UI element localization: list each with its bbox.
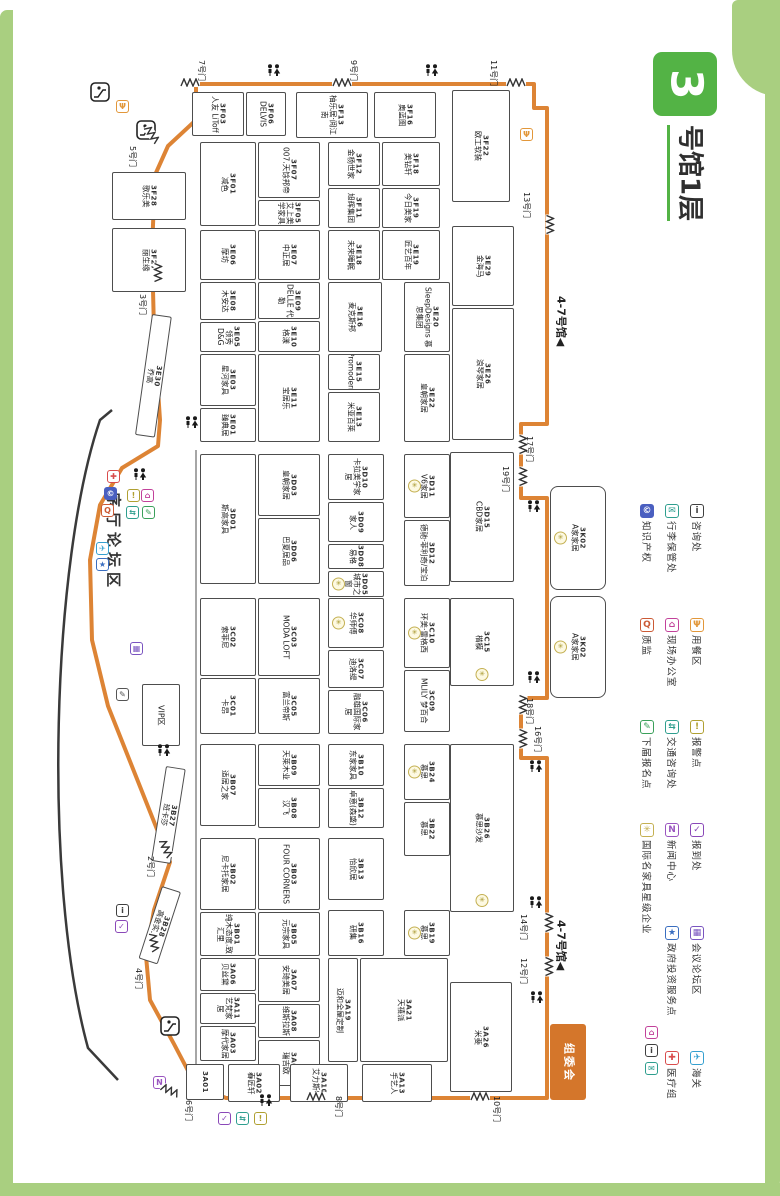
booth-3d05: 3D05城市之窗✳: [328, 571, 384, 597]
booth-label: 3C03MODA LOFT: [281, 615, 298, 659]
customs-icon: ✈: [96, 542, 109, 555]
booth-code: 3F22: [481, 131, 489, 161]
booth-label: 3F03人友 LiToff: [210, 96, 227, 133]
booth-code: 3A21: [404, 999, 412, 1022]
booth-name: DELLE 代勒: [276, 283, 293, 318]
hall-number-badge: 3: [653, 52, 717, 116]
booth-name: 尼卡托家居: [220, 855, 229, 893]
booth-name: 楷模: [474, 631, 483, 653]
booth-3e11: 3E11宝居乐: [258, 354, 320, 442]
booth-3c06: 3C06融雄国际家居: [328, 690, 384, 734]
booth-3d12: 3D12德驰·菲利奇/宝泊: [404, 520, 450, 586]
booth-label: 3E07中正居: [281, 244, 298, 267]
booth-label: 3E26浪琴家居: [475, 359, 492, 389]
gate-mark-16号门: [519, 729, 528, 749]
gate-label-8号门: 8号门: [334, 1096, 343, 1117]
booth-3f12: 3F12金杨世家: [328, 142, 380, 186]
floor-plan-page: 3 号馆1层 3F03人友 LiToff3F06DELVIS3F13柚乐居·阅江…: [0, 0, 780, 1196]
legend-label: 现场办公室: [665, 635, 679, 688]
booth-3b13: 3B13怡欣居: [328, 838, 384, 900]
booth-label: 3B03FOUR CORNERS: [281, 844, 298, 904]
booth-label: 3E20SleepDesigns 慕思集团: [414, 283, 439, 351]
booth-name: 格漾: [281, 326, 290, 347]
booth-label: 3B19慕思: [419, 922, 436, 944]
office-icon: ⌂: [141, 489, 154, 502]
booth-name: 人友 LiToff: [210, 96, 219, 133]
booth-label: 3B27班卡莎: [158, 803, 178, 828]
booth-3b26: 3B26慕思沙发✳: [450, 744, 514, 912]
booth-3c05: 3C05富兰帝斯: [258, 678, 320, 734]
booth-3b03: 3B03FOUR CORNERS: [258, 838, 320, 910]
booth-label: 3F07007.天馀邦帝: [281, 147, 298, 194]
legend-item-customs: ✈海关: [690, 1051, 704, 1089]
checkin-icon: ✓: [115, 920, 128, 933]
checkin-icon: ✓: [218, 1112, 231, 1125]
booth-label: 3C06融雄国际家居: [343, 691, 368, 733]
committee-label: 组委会: [562, 1043, 575, 1082]
legend-label: 会议论坛区: [690, 943, 704, 996]
star-enterprise-icon: ✳: [408, 480, 421, 493]
booth-name: 米斐: [473, 1026, 482, 1048]
booth-label: 3E11宝居乐: [281, 387, 298, 410]
legend-item-gov: ★政府投资服务点: [665, 926, 679, 1017]
restroom-icon: [526, 500, 541, 512]
booth-name: 卓意(森盛): [348, 790, 357, 826]
booth-name: 匠艺百年: [403, 240, 412, 270]
nextreg-icon: ✎: [640, 720, 654, 734]
booth-name: 纯木态度.致汇里: [215, 913, 232, 955]
restroom-icon: [528, 896, 543, 908]
escalator-icon: [90, 82, 110, 102]
booth-3b24: 3B24慕思✳: [404, 744, 450, 800]
info-icon: i: [645, 1044, 658, 1057]
gate-label-13号门: 13号门: [522, 192, 531, 218]
gate-label-3号门: 3号门: [138, 294, 147, 315]
booth-name: MLILY 梦百合: [419, 678, 428, 724]
booth-label: 3C02索菲尼: [220, 626, 237, 649]
booth-label: 3A11艺梵家居: [215, 994, 240, 1023]
booth-name: 天莱木业: [281, 750, 290, 780]
starent-icon: ✳: [640, 823, 654, 837]
gate-mark-14号门: [545, 913, 554, 933]
dining-icon: Ψ: [520, 128, 533, 141]
legend-item-starent: ✳国际名家具星级企业: [640, 823, 654, 935]
booth-code: 3C01: [228, 695, 236, 717]
legend-label: 政府投资服务点: [665, 943, 679, 1017]
booth-3b19: 3B19慕思✳: [404, 910, 450, 956]
police-icon: !: [254, 1112, 267, 1125]
booth-name: 巴夏居品: [281, 536, 290, 566]
restroom-icon: [528, 760, 543, 772]
vip-area: VIP区: [142, 684, 180, 746]
legend-label: 咨询处: [690, 521, 704, 553]
booth-name: 德驰·菲利奇/宝泊: [419, 524, 428, 581]
booth-name: 臻典居: [220, 414, 229, 437]
booth-name: 金杨世家: [346, 149, 355, 179]
booth-code: 3A01: [201, 1071, 209, 1093]
booth-3b01: 3B01纯木态度.致汇里: [200, 912, 256, 956]
booth-code: 3E10: [289, 326, 297, 347]
booth-label: 3A13手艺人: [389, 1072, 406, 1095]
booth-3a08: 3A08维斯拉斯: [258, 1004, 320, 1038]
booth-label: 3C07迪洛缇: [348, 658, 365, 681]
booth-code: 3B10: [356, 750, 364, 780]
booth-3c09: 3C09MLILY 梦百合: [404, 670, 450, 732]
booth-3c07: 3C07迪洛缇: [328, 650, 384, 688]
gov-icon: ★: [96, 558, 109, 571]
legend-label: 新闻中心: [665, 840, 679, 882]
booth-label: 3E18未来睡眠: [346, 240, 363, 270]
luggage-icon: ✉: [645, 1062, 658, 1075]
booth-code: 3A03: [228, 1029, 236, 1059]
pen-icon: ✎: [116, 688, 129, 701]
booth-name: 研集: [348, 922, 357, 944]
booth-label: 3E05领秀D&G: [215, 323, 240, 351]
booth-label: 3A08维斯拉斯: [281, 1006, 298, 1036]
booth-3e05: 3E05领秀D&G: [200, 322, 256, 352]
booth-label: 3E29金海马: [475, 255, 492, 278]
medical-icon: ✚: [665, 1051, 679, 1065]
legend-label: 用餐区: [690, 635, 704, 667]
booth-3f27: 3F27丽生缘: [112, 228, 186, 292]
legend-item-magnifier: Q质监: [640, 618, 654, 656]
booth-3f06: 3F06DELVIS: [246, 92, 286, 136]
booth-code: 3B08: [289, 797, 297, 819]
booth-3f22: 3F22欧工软装: [452, 90, 510, 202]
booth-label: 3D01斯高家具: [220, 504, 237, 534]
booth-code: 3A08: [289, 1006, 297, 1036]
booth-code: 3F07: [289, 147, 297, 194]
page-title: 3 号馆1层: [652, 52, 718, 221]
restroom-icon: [529, 991, 544, 1003]
booth-code: 3B05: [289, 919, 297, 949]
booth-3f01: 3F01减色: [200, 142, 256, 226]
booth-label: 3A21天禧派: [396, 999, 413, 1022]
legend-item-traffic: ⇆交通咨询处: [665, 720, 679, 790]
booth-name: 卡拉美学家居: [343, 455, 360, 499]
booth-label: 3F12金杨世家: [346, 149, 363, 179]
booth-name: 斯高家具: [220, 504, 229, 534]
booth-name: 迈和全屋定制: [335, 988, 344, 1033]
booth-name: 适居之家: [220, 770, 229, 800]
booth-code: 3A26: [481, 1026, 489, 1048]
legend-item-nextreg: ✎下届报名点: [640, 720, 654, 790]
booth-code: 3C03: [289, 615, 297, 659]
gate-label-10号门: 10号门: [492, 1096, 501, 1122]
booth-label: 3A19迈和全屋定制: [335, 988, 352, 1033]
magnifier-icon: Q: [101, 504, 114, 517]
booth-label: 3A01: [201, 1071, 209, 1093]
booth-label: 3F28歌乐美: [141, 185, 158, 208]
booth-name: 迪洛缇: [348, 658, 357, 681]
police-icon: !: [127, 489, 140, 502]
ip-icon: ©: [104, 487, 117, 500]
legend-item-news: N新闻中心: [665, 823, 679, 882]
booth-3b07: 3B07适居之家: [200, 744, 256, 826]
booth-3f18: 3F18美钻轩: [382, 142, 440, 186]
booth-label: 3F22欧工软装: [473, 131, 490, 161]
legend-item-checkin: ✓报到处: [690, 823, 704, 872]
magnifier-icon: Q: [640, 618, 654, 632]
gate-label-2号门: 2号门: [146, 856, 155, 877]
booth-code: 3B24: [427, 761, 435, 783]
booth-label: 3E16麦克斯邦: [347, 302, 364, 332]
booth-name: 丽生缘: [141, 249, 150, 272]
booth-code: 3C02: [228, 626, 236, 649]
gate-label-7号门: 7号门: [197, 60, 206, 81]
forum-icon: ▦: [690, 926, 704, 940]
booth-code: 3D03: [289, 470, 297, 500]
booth-code: 3C05: [289, 691, 297, 721]
booth-3d11: 3D11V6家居✳: [404, 454, 450, 518]
restroom-icon: [424, 64, 439, 76]
booth-code: 3E08: [228, 290, 236, 313]
legend-item-luggage: ✉行李保管处: [665, 504, 679, 574]
hall-number: 3: [660, 69, 711, 100]
booth-code: 3B09: [289, 750, 297, 780]
booth-label: 3F11旭辉集团: [346, 193, 363, 223]
booth-name: 融雄国际家居: [343, 691, 360, 733]
booth-name: 汉飞: [281, 797, 290, 819]
booth-code: 3C08: [356, 612, 364, 635]
booth-label: 3A02春匠轩: [246, 1072, 263, 1095]
gate-mark-8号门: [306, 1092, 326, 1101]
office-icon: ⌂: [645, 1026, 658, 1039]
booth-name: 富兰帝斯: [281, 691, 290, 721]
traffic-icon: ⇆: [236, 1112, 249, 1125]
booth-3e26: 3E26浪琴家居: [452, 308, 514, 440]
booth-code: 3C07: [356, 658, 364, 681]
gate-mark-10号门: [470, 1092, 490, 1101]
vip-label: VIP区: [156, 705, 165, 726]
booth-3b12: 3B12卓意(森盛): [328, 788, 384, 828]
legend-item-info: i咨询处: [690, 504, 704, 553]
booth-label: 3D05城市之窗: [343, 572, 368, 596]
booth-code: 3B13: [356, 858, 364, 881]
star-enterprise-icon: ✳: [476, 894, 489, 907]
booth-3a19: 3A19迈和全屋定制: [328, 958, 358, 1062]
booth-label: 3D10卡拉美学家居: [343, 455, 368, 499]
booth-3e19: 3E19匠艺百年: [382, 230, 440, 280]
checkin-icon: ✓: [690, 823, 704, 837]
booth-3e29: 3E29金海马: [452, 226, 514, 306]
booth-code: 3F16: [405, 104, 413, 127]
booth-name: CBD家居: [474, 501, 483, 532]
booth-code: 3D12: [427, 524, 435, 581]
booth-3e09: 3E09DELLE 代勒: [258, 282, 320, 319]
booth-3e07: 3E07中正居: [258, 230, 320, 280]
gate-label-16号门: 16号门: [533, 726, 542, 752]
booth-name: 宝居乐: [281, 387, 290, 410]
booth-code: 3E11: [289, 387, 297, 410]
legend-item-police: !报警点: [690, 720, 704, 769]
booth-3e13: 3E13米亚百莱: [328, 392, 380, 442]
booth-label: 3B16研集: [348, 922, 365, 944]
booth-label: 3C10环美·雷格西: [419, 613, 436, 653]
booth-3e01: 3E01臻典居: [200, 408, 256, 442]
booth-code: 3A02: [254, 1072, 262, 1095]
legend-label: 国际名家具星级企业: [640, 840, 654, 935]
news-icon: N: [665, 823, 679, 837]
booth-name: 美钻轩: [403, 153, 412, 176]
booth-code: 3E15: [354, 354, 362, 390]
frame-bottom: [0, 1183, 780, 1196]
booth-3e16: 3E16麦克斯邦: [328, 282, 382, 352]
booth-name: 慕思: [419, 818, 428, 840]
booth-3b10: 3B10东家家具: [328, 744, 384, 786]
escalator-icon: [160, 1016, 180, 1036]
booth-name: 中正居: [281, 244, 290, 267]
restroom-icon: [156, 744, 171, 756]
booth-name: Promodern: [346, 354, 355, 390]
restroom-icon: [132, 468, 147, 480]
legend-item-medical: ✚医疗组: [665, 1051, 679, 1100]
booth-name: 东家家具: [348, 750, 357, 780]
booth-code: 3B16: [356, 922, 364, 944]
booth-name: 城市之窗: [343, 572, 360, 596]
gate-label-9号门: 9号门: [349, 60, 358, 81]
committee-box: 组委会: [550, 1024, 586, 1100]
booth-label: 3B07适居之家: [220, 770, 237, 800]
restroom-icon: [266, 64, 281, 76]
booth-3d10: 3D10卡拉美学家居: [328, 454, 384, 500]
star-enterprise-icon: ✳: [332, 578, 345, 591]
gate-label-17号门: 17号门: [525, 436, 534, 462]
booth-3d08: 3D08易格: [328, 544, 384, 569]
booth-3b05: 3B05元宗家具: [258, 912, 320, 956]
booth-label: 3E30乔高: [144, 364, 163, 388]
police-icon: !: [690, 720, 704, 734]
booth-3a13: 3A13手艺人: [362, 1064, 432, 1102]
booth-code: 3F28: [149, 185, 157, 208]
customs-icon: ✈: [690, 1051, 704, 1065]
booth-code: 3F06: [266, 101, 274, 127]
booth-name: 瑞吉欧: [281, 1052, 290, 1075]
medical-icon: ✚: [107, 470, 120, 483]
legend-item-dining: Ψ用餐区: [690, 618, 704, 667]
booth-code: 3K02: [578, 524, 586, 552]
booth-name: 木安达: [220, 290, 229, 313]
office-icon: ⌂: [665, 618, 679, 632]
booth-label: 3D09家人: [348, 511, 365, 533]
booth-3e03: 3E03星河家具: [200, 354, 256, 406]
legend-label: 质监: [640, 635, 654, 656]
booth-3e20: 3E20SleepDesigns 慕思集团: [404, 282, 450, 352]
booth-code: 3E03: [228, 365, 236, 395]
booth-label: 3C15楷模: [474, 631, 491, 653]
legend-label: 海关: [690, 1068, 704, 1089]
gate-label-5号门: 5号门: [128, 146, 137, 167]
gate-mark-12号门: [545, 957, 554, 977]
legend-label: 医疗组: [665, 1068, 679, 1100]
booth-3d03: 3D03皇朝家居: [258, 454, 320, 516]
legend-label: 报到处: [690, 840, 704, 872]
booth-code: 3E29: [483, 255, 491, 278]
booth-label: 3D03皇朝家居: [281, 470, 298, 500]
booth-code: 3D11: [427, 474, 435, 499]
booth-code: 3B26: [482, 813, 490, 843]
booth-label: 3E15Promodern: [346, 354, 363, 390]
booth-name: 华师傅: [348, 612, 357, 635]
booth-code: 3B03: [289, 844, 297, 904]
booth-name: 歌乐美: [141, 185, 150, 208]
booth-3f07: 3F07007.天馀邦帝: [258, 142, 320, 198]
star-enterprise-icon: ✳: [408, 927, 421, 940]
booth-code: 3B19: [427, 922, 435, 944]
booth-name: 慕思沙发: [474, 813, 483, 843]
gate-mark-13号门: [546, 215, 555, 235]
legend-label: 报警点: [690, 737, 704, 769]
luggage-icon: ✉: [665, 504, 679, 518]
booth-3a21: 3A21天禧派: [360, 958, 448, 1062]
booth-name: 减色: [220, 173, 229, 194]
booth-3c02: 3C02索菲尼: [200, 598, 256, 676]
gate-mark-19号门: [519, 467, 528, 487]
info-icon: i: [116, 904, 129, 917]
booth-label: 3F19今日美家: [403, 193, 420, 223]
booth-code: 3D09: [356, 511, 364, 533]
booth-3d01: 3D01斯高家具: [200, 454, 256, 584]
gate-label-19号门: 19号门: [501, 466, 510, 492]
booth-code: 3A19: [343, 988, 351, 1033]
booth-name: 维斯拉斯: [281, 1006, 290, 1036]
booth-name: SleepDesigns 慕思集团: [414, 283, 431, 351]
booth-label: 3E09DELLE 代勒: [276, 283, 301, 318]
booth-label: 3C08华师傅: [348, 612, 365, 635]
booth-label: 3B13怡欣居: [348, 858, 365, 881]
booth-3b09: 3B09天莱木业: [258, 744, 320, 786]
booth-name: 贝丝黛: [220, 963, 229, 986]
booth-3b22: 3B22慕思: [404, 802, 450, 856]
gate-label-11号门: 11号门: [489, 60, 498, 86]
booth-label: 3E22皇朝家居: [419, 383, 436, 413]
booth-code: 3F11: [354, 193, 362, 223]
booth-label: 3B26慕思沙发: [474, 813, 491, 843]
hall-4-7-direction-2: 4-7号馆◀: [554, 920, 567, 970]
legend-label: 行李保管处: [665, 521, 679, 574]
booth-label: 3F18美钻轩: [403, 153, 420, 176]
booth-code: 3F18: [411, 153, 419, 176]
booth-code: 3C09: [427, 678, 435, 724]
booth-3b28: 3B28高金实业: [139, 886, 182, 964]
booth-code: 3B22: [427, 818, 435, 840]
booth-code: 3A06: [228, 963, 236, 986]
booth-label: 3F06DELVIS: [258, 101, 275, 127]
booth-code: 3D08: [356, 545, 364, 567]
booth-label: 3B08汉飞: [281, 797, 298, 819]
star-enterprise-icon: ✳: [408, 766, 421, 779]
booth-label: 3D15CBD家居: [474, 501, 491, 532]
booth-label: 3A03摩代家居: [220, 1029, 237, 1059]
booth-code: 3E16: [355, 302, 363, 332]
booth-label: 3E01臻典居: [220, 414, 237, 437]
booth-label: 3E13米亚百莱: [346, 402, 363, 432]
booth-code: 3B07: [228, 770, 236, 800]
hall-floor-label: 号馆1层: [667, 125, 704, 221]
booth-label: 3C05富兰帝斯: [281, 691, 298, 721]
booth-3a11: 3A11艺梵家居: [200, 993, 256, 1024]
booth-3f28: 3F28歌乐美: [112, 172, 186, 220]
booth-3b08: 3B08汉飞: [258, 788, 320, 828]
booth-code: 3E26: [483, 359, 491, 389]
info-icon: i: [690, 504, 704, 518]
booth-name: 艾上美学家具: [276, 201, 293, 225]
legend-label: 交通咨询处: [665, 737, 679, 790]
star-enterprise-icon: ✳: [554, 641, 567, 654]
booth-code: 3E22: [427, 383, 435, 413]
booth-name: 奥蓝图: [397, 104, 406, 127]
booth-name: A家家居: [570, 633, 579, 661]
